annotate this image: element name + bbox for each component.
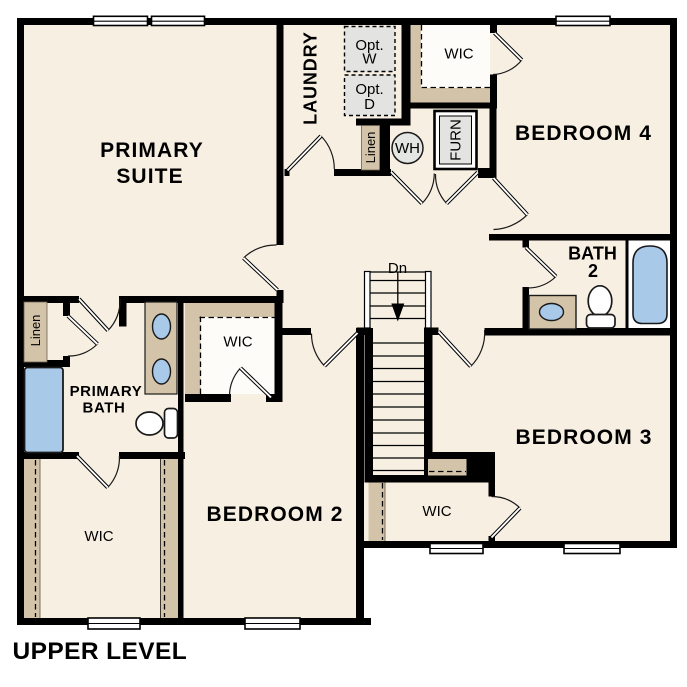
svg-text:BATH: BATH: [83, 400, 126, 417]
svg-text:PRIMARY: PRIMARY: [100, 139, 204, 162]
svg-text:WIC: WIC: [422, 503, 451, 520]
svg-text:2: 2: [588, 261, 598, 281]
svg-text:D: D: [364, 96, 375, 113]
svg-text:W: W: [362, 51, 377, 68]
svg-text:Linen: Linen: [28, 315, 43, 347]
svg-text:Linen: Linen: [363, 132, 378, 164]
svg-text:BEDROOM 3: BEDROOM 3: [515, 426, 652, 449]
svg-text:BEDROOM 2: BEDROOM 2: [206, 503, 343, 526]
svg-text:WIC: WIC: [223, 334, 252, 351]
svg-text:WH: WH: [395, 140, 420, 157]
svg-text:PRIMARY: PRIMARY: [70, 383, 143, 400]
svg-text:FURN: FURN: [448, 119, 465, 161]
svg-text:LAUNDRY: LAUNDRY: [301, 31, 321, 125]
svg-text:UPPER LEVEL: UPPER LEVEL: [13, 638, 188, 665]
svg-text:SUITE: SUITE: [116, 165, 183, 188]
svg-text:Dn: Dn: [388, 260, 407, 277]
svg-text:WIC: WIC: [444, 46, 473, 63]
svg-text:BEDROOM 4: BEDROOM 4: [515, 122, 652, 145]
svg-text:WIC: WIC: [84, 528, 113, 545]
